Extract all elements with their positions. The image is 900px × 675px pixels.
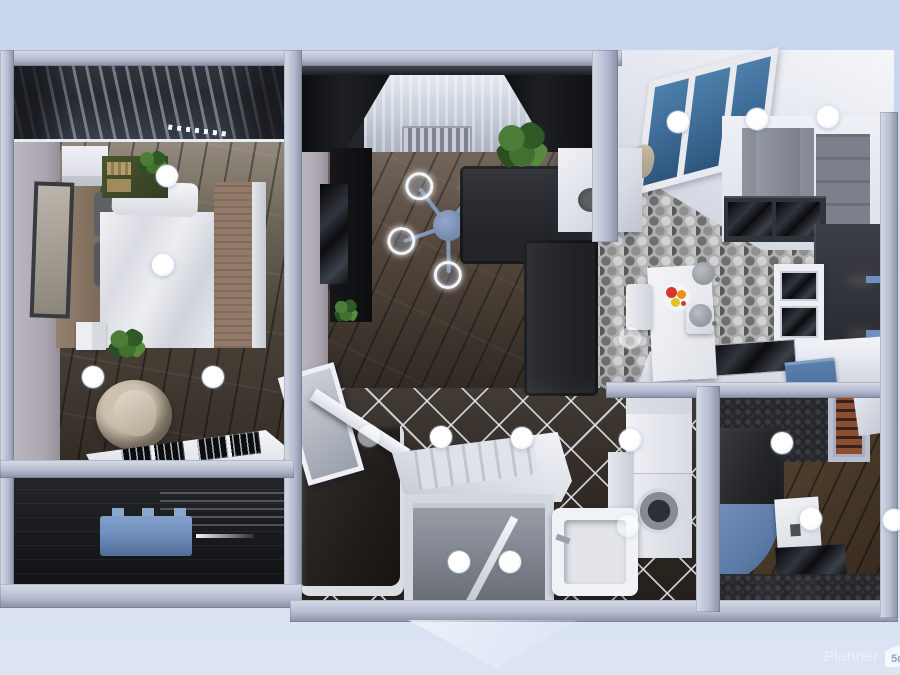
- cabinet-plant[interactable]: [334, 298, 358, 324]
- shower-cabin-cutaway[interactable]: [404, 494, 554, 612]
- washer-door: [636, 488, 682, 534]
- corner-sofa-seat[interactable]: [524, 240, 598, 396]
- kitchen-bathroom-wall: [606, 382, 896, 398]
- outer-wall-right: [880, 112, 898, 618]
- cooktop[interactable]: [705, 339, 797, 377]
- planner5d-logo: 5d: [885, 645, 900, 667]
- bed-duvet: [100, 212, 216, 348]
- sofa-corner-plant[interactable]: [496, 120, 548, 172]
- bedroom-balcony-wall: [0, 460, 294, 478]
- built-in-oven: [780, 306, 818, 338]
- bedroom-living-wall: [284, 50, 302, 608]
- cabinet-glass-door: [728, 202, 772, 236]
- bed-blanket: [214, 182, 254, 348]
- light-switch[interactable]: [76, 322, 106, 350]
- armchair-cushion: [114, 390, 156, 436]
- outer-wall-top: [0, 50, 622, 66]
- bar-stool[interactable]: [692, 262, 715, 285]
- dining-chair[interactable]: [626, 284, 652, 330]
- balcony-bottom-wall: [0, 584, 302, 608]
- toilet-dark-wall: [714, 428, 784, 508]
- main-bottom-wall: [290, 600, 898, 622]
- upper-cabinets[interactable]: [724, 196, 826, 242]
- washer-column-cabinet[interactable]: [626, 392, 692, 476]
- curtain-rail: [302, 66, 594, 75]
- toilet-left-wall: [696, 386, 720, 612]
- radiator[interactable]: [402, 126, 472, 152]
- tv[interactable]: [320, 184, 348, 284]
- toilet-sink-counter[interactable]: [774, 497, 822, 552]
- floor-plant-green[interactable]: [108, 328, 146, 360]
- exterior-light-wedge: [408, 620, 578, 668]
- toilet-vanity[interactable]: [775, 544, 846, 578]
- bathroom-sink[interactable]: [552, 508, 638, 596]
- bedroom-window-blinds[interactable]: [8, 58, 286, 142]
- bedroom-plant[interactable]: [138, 150, 168, 176]
- hall-wall-stub: [592, 50, 618, 242]
- wicker-basket: [107, 162, 131, 175]
- planner5d-render-canvas: { "watermark": { "brand": "Planner", "lo…: [0, 0, 900, 675]
- shower-glass-door: [466, 516, 518, 605]
- oven-column[interactable]: [774, 264, 824, 344]
- toilet-sink-faucet: [790, 524, 801, 537]
- outer-wall-left: [0, 50, 14, 602]
- sink-basin: [564, 520, 626, 584]
- balcony-bench-blue[interactable]: [100, 516, 192, 556]
- built-in-oven: [780, 271, 818, 301]
- bench-knob: [112, 508, 124, 516]
- bar-stool[interactable]: [689, 304, 712, 327]
- living-window[interactable]: [300, 60, 596, 152]
- armchair[interactable]: [96, 380, 172, 450]
- balcony-light-streak: [196, 534, 254, 538]
- watermark: Planner 5d: [824, 645, 900, 667]
- wall-mirror[interactable]: [30, 181, 75, 318]
- fruit: [666, 287, 677, 298]
- watermark-brand-text: Planner: [824, 648, 879, 665]
- bed-frame-edge: [252, 182, 266, 348]
